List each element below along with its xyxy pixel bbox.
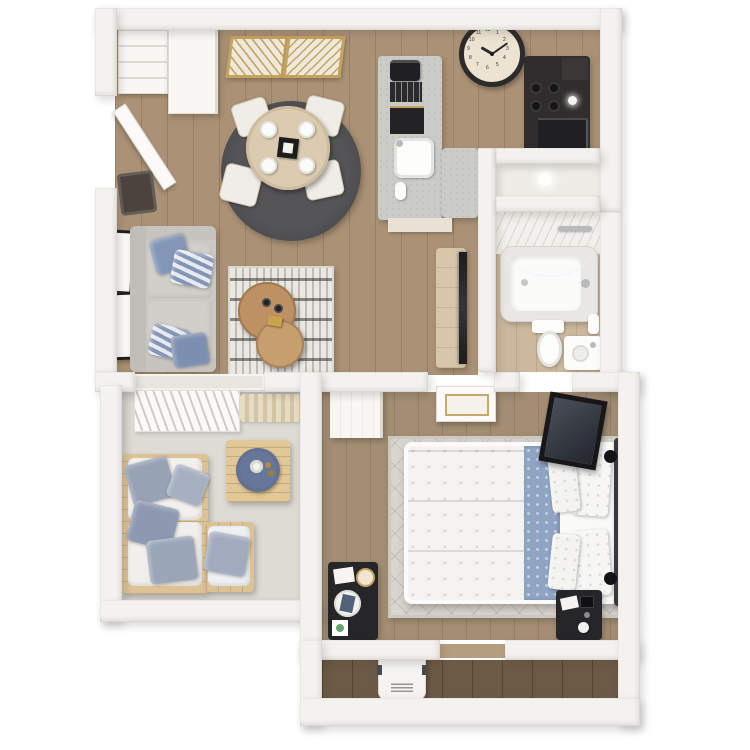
closet-light bbox=[538, 172, 552, 186]
television bbox=[459, 252, 467, 364]
sliding-door-panel bbox=[330, 386, 383, 438]
nightstand-sphere bbox=[578, 622, 589, 633]
white-duvet bbox=[408, 446, 526, 600]
unit-clamp bbox=[422, 665, 427, 675]
balcony-pillow bbox=[203, 531, 251, 578]
bed-pillow bbox=[547, 533, 581, 592]
wall-clock: 12 1 2 3 4 5 6 7 8 9 10 11 bbox=[459, 21, 525, 87]
tub-drain bbox=[521, 279, 528, 286]
wall-living-bath bbox=[478, 148, 496, 372]
burner bbox=[548, 100, 560, 112]
towels bbox=[588, 314, 599, 334]
shelf-cabinet bbox=[118, 28, 168, 94]
desk-coaster bbox=[332, 620, 348, 636]
desk-tray bbox=[334, 590, 361, 617]
burner bbox=[530, 82, 542, 94]
vanity-sink bbox=[564, 336, 602, 370]
black-desk bbox=[328, 562, 378, 640]
tray-book bbox=[339, 594, 355, 613]
balcony-pillow bbox=[145, 535, 198, 585]
clock-center-pin bbox=[490, 52, 494, 56]
wall-bottom-outer bbox=[300, 698, 640, 726]
headboard-knob bbox=[604, 572, 617, 585]
clock-numeral: 4 bbox=[503, 56, 506, 61]
cooktop-counter bbox=[524, 56, 590, 152]
pantry-cabinet bbox=[168, 28, 218, 114]
refrigerator bbox=[538, 118, 588, 152]
wall-right-bathroom bbox=[600, 212, 622, 392]
clock-numeral: 9 bbox=[467, 47, 470, 52]
paper-towel-roll bbox=[395, 182, 406, 200]
clock-numeral: 6 bbox=[486, 66, 489, 71]
sofa-pillow-blue bbox=[170, 332, 210, 369]
upper-cabinet bbox=[562, 58, 588, 80]
tub-faucet bbox=[581, 279, 590, 288]
gold-wall-mirror-right bbox=[282, 36, 345, 78]
clock-numeral: 3 bbox=[506, 47, 509, 52]
vent-grille bbox=[391, 683, 413, 692]
door-gold-inset bbox=[445, 394, 489, 416]
sink-faucet bbox=[396, 140, 403, 147]
dinner-plate bbox=[260, 157, 277, 174]
nightstand-dial bbox=[584, 612, 590, 618]
gold-wall-mirror-left bbox=[225, 36, 288, 78]
entry-doormat bbox=[117, 170, 158, 216]
bottle bbox=[265, 462, 271, 468]
coffee-cup bbox=[262, 298, 271, 307]
wall-bedroom-left bbox=[300, 372, 322, 660]
dinner-plate bbox=[298, 157, 315, 174]
vanity-basin bbox=[572, 345, 589, 362]
sofa-backrest bbox=[130, 226, 146, 372]
wall-balcony-left bbox=[100, 385, 122, 622]
wall-closet-bath bbox=[496, 196, 600, 212]
wall-left-upper bbox=[95, 8, 117, 96]
unit-clamp bbox=[377, 665, 382, 675]
nightstand-card bbox=[560, 595, 579, 610]
coffee-cup bbox=[274, 304, 283, 313]
espresso-machine bbox=[390, 60, 420, 81]
toilet-bowl bbox=[537, 331, 562, 367]
clock-numeral: 1 bbox=[496, 31, 499, 36]
clock-numeral: 8 bbox=[469, 56, 472, 61]
burner bbox=[530, 100, 542, 112]
wall-top bbox=[95, 8, 622, 30]
vanity-faucet bbox=[590, 342, 596, 348]
kitchen-island-extension bbox=[442, 148, 478, 218]
striped-doormat bbox=[240, 394, 302, 422]
clock-numeral: 10 bbox=[469, 38, 475, 43]
wall-left-lower bbox=[95, 188, 117, 375]
vase bbox=[250, 460, 263, 473]
dinner-plate bbox=[260, 121, 277, 138]
wall-right-upper bbox=[600, 8, 622, 212]
towel-bar bbox=[558, 226, 592, 231]
desk-papers bbox=[333, 567, 355, 585]
counter-light bbox=[568, 96, 577, 105]
floor-plan: 12 1 2 3 4 5 6 7 8 9 10 11 bbox=[0, 0, 750, 750]
vertical-blinds bbox=[134, 390, 240, 432]
island-shelf bbox=[390, 106, 424, 134]
center-tray bbox=[277, 137, 299, 159]
hallway-floor bbox=[322, 660, 618, 698]
bathtub bbox=[500, 246, 598, 322]
desk-clock bbox=[356, 568, 375, 587]
bottle bbox=[268, 470, 274, 476]
headboard-knob bbox=[604, 450, 617, 463]
coffee-table-small bbox=[256, 320, 304, 368]
utensil-tray bbox=[390, 82, 422, 102]
balcony-door-frame bbox=[134, 374, 264, 390]
dinner-plate bbox=[298, 121, 315, 138]
tray-napkin bbox=[282, 142, 293, 153]
burner bbox=[548, 82, 560, 94]
nightstand-gadget bbox=[580, 596, 594, 608]
wall-kitchen-closet bbox=[496, 148, 600, 164]
clock-numeral: 7 bbox=[476, 63, 479, 68]
coaster-green-dot bbox=[336, 624, 344, 632]
threshold bbox=[440, 644, 505, 658]
wall-horizontal-b bbox=[264, 372, 428, 392]
clock-numeral: 5 bbox=[496, 63, 499, 68]
leaning-mirror bbox=[538, 391, 607, 470]
island-base bbox=[388, 218, 452, 232]
dining-table bbox=[246, 106, 330, 190]
bedroom-door bbox=[436, 386, 496, 422]
clock-numeral: 11 bbox=[476, 31, 481, 36]
black-nightstand bbox=[556, 590, 602, 640]
wall-bedroom-right bbox=[618, 372, 640, 726]
wall-balcony-bottom bbox=[100, 600, 322, 622]
sofa-pillow-striped bbox=[169, 249, 214, 289]
wall-horizontal-c bbox=[494, 372, 520, 392]
